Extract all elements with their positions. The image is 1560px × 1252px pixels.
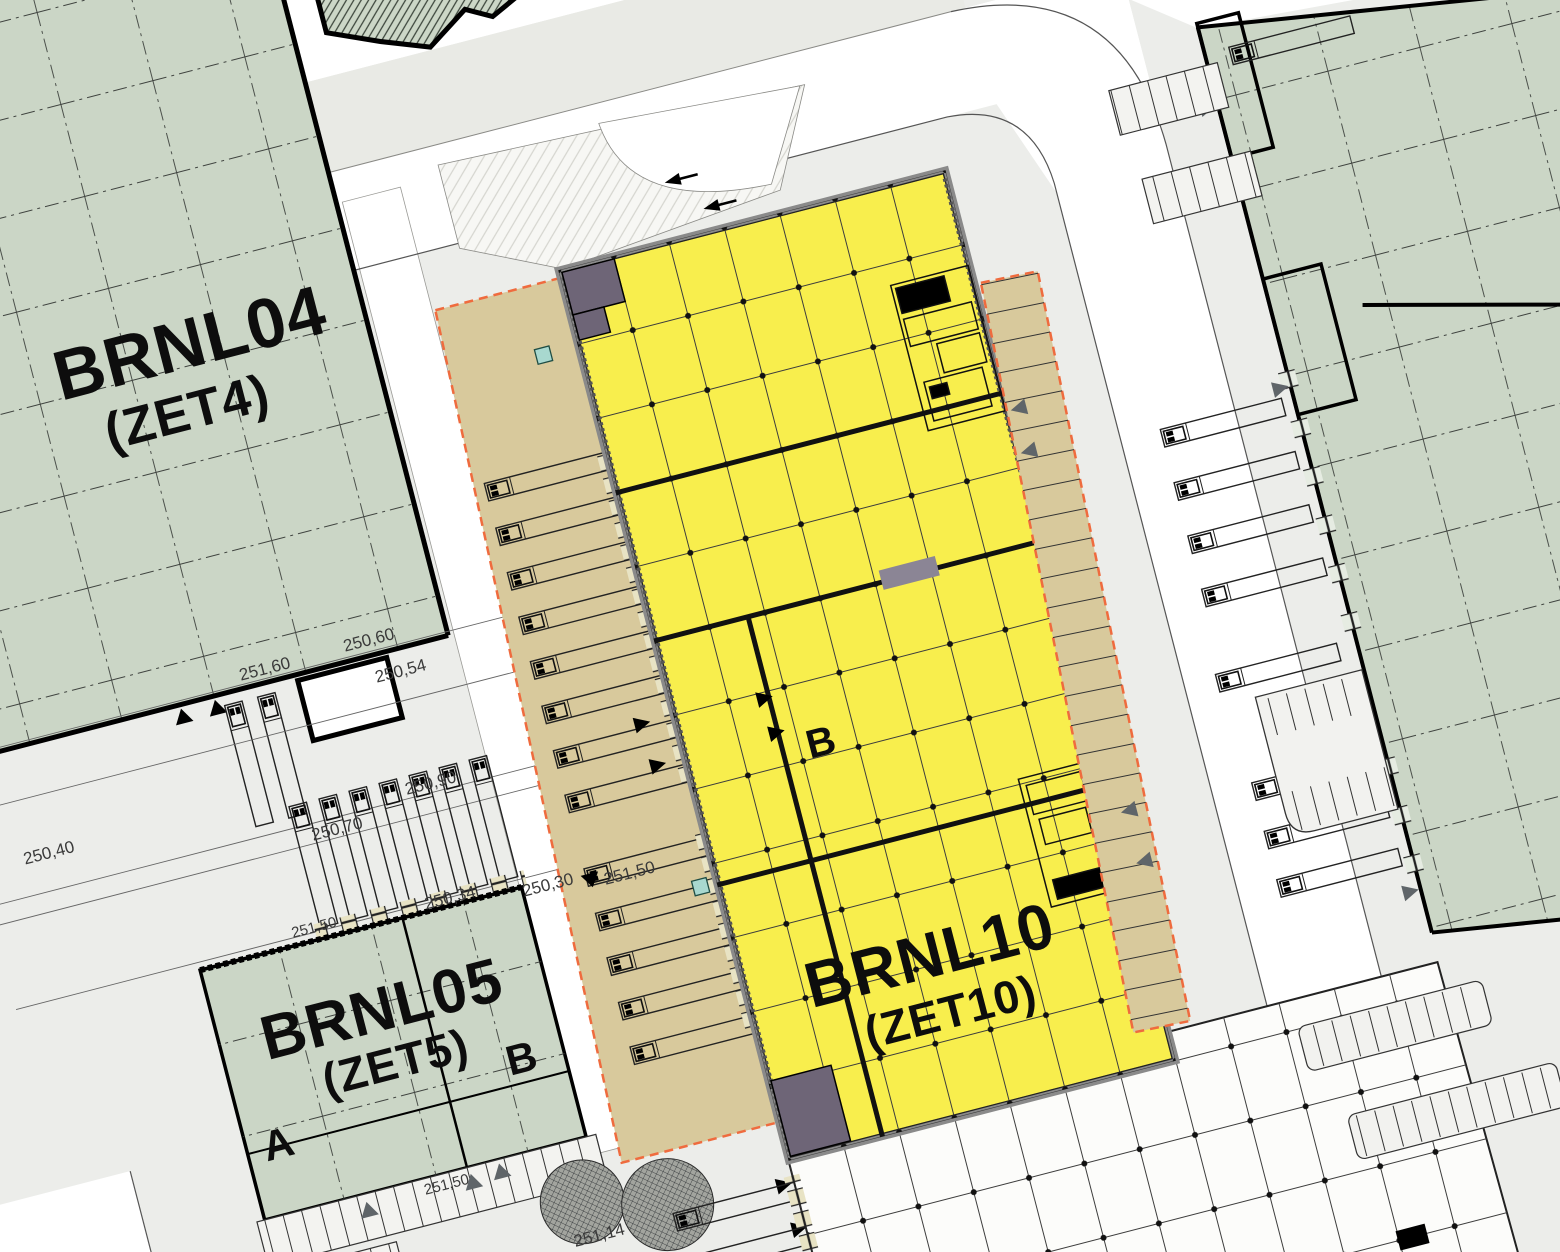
hydrant-fixture [691, 878, 709, 896]
plan-rotated-group: BRNL04 (ZET4) [0, 0, 1560, 1252]
site-plan-canvas: BRNL04 (ZET4) [0, 0, 1560, 1252]
hydrant-fixture [534, 346, 552, 364]
site-plan-svg: BRNL04 (ZET4) [0, 0, 1560, 1252]
